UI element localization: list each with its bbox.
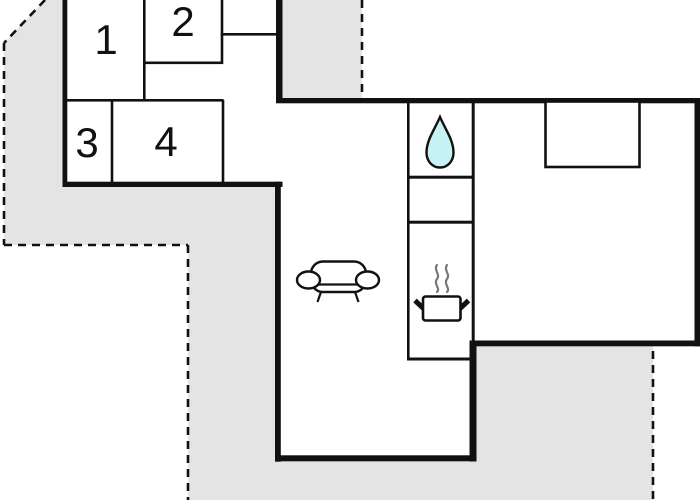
- room-4-label: 4: [154, 121, 177, 163]
- wall-main-east: [470, 341, 477, 462]
- room-3-label: 3: [75, 122, 98, 164]
- wall-rooms-left: [63, 0, 68, 187]
- wall-bedroom-bottom: [470, 341, 700, 347]
- room-1-label: 1: [94, 19, 117, 61]
- wall-room4-right: [222, 100, 225, 183]
- utility-cell-area: [410, 180, 472, 221]
- bed: [546, 102, 640, 168]
- wall-room2-bottom: [143, 62, 223, 65]
- wall-room2-right: [221, 0, 224, 64]
- wall-small-room-bottom: [221, 33, 279, 36]
- kitchen-cell-area: [410, 225, 472, 358]
- corridor-area: [224, 37, 274, 181]
- wall-rooms-east: [276, 0, 283, 101]
- room-top-right-area: [224, 0, 276, 32]
- wall-rooms-bottom: [63, 182, 283, 187]
- floor-plan-drawing: [0, 0, 700, 500]
- wall-main-west: [275, 182, 281, 462]
- wall-mid-horizontal: [64, 99, 224, 102]
- wall-kitchen-strip-left: [407, 101, 410, 360]
- floor-plan: 1 2 3 4: [0, 0, 700, 500]
- wall-room3-room4-divider: [111, 100, 114, 183]
- wall-right: [695, 98, 700, 346]
- wall-room1-right: [143, 0, 146, 101]
- wall-kitchen-strip-bottom: [407, 358, 475, 361]
- wall-utility-cell-bottom: [407, 221, 475, 224]
- terrace-top-patch: [282, 0, 362, 98]
- wall-kitchen-strip-right: [472, 101, 475, 360]
- room-2-label: 2: [171, 1, 194, 43]
- wall-bathroom-cell-bottom: [407, 176, 475, 179]
- wall-main-bottom: [275, 455, 477, 461]
